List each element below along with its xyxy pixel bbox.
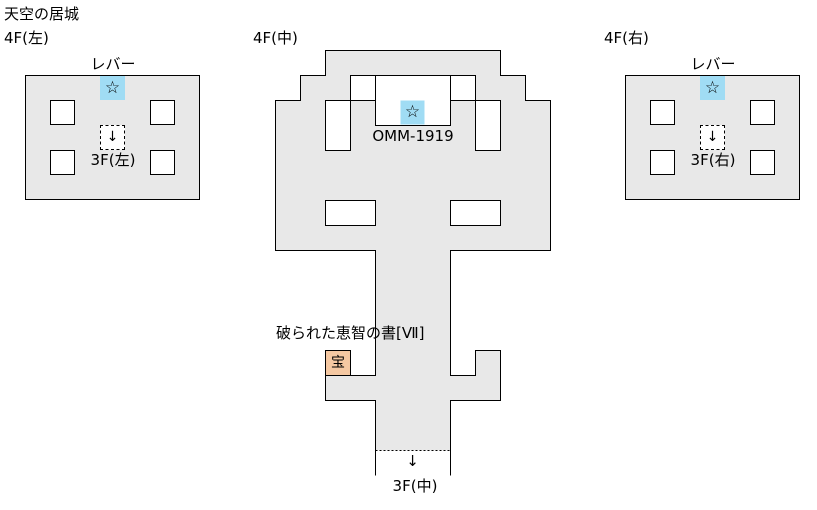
stairs-label-3f-left: 3F(左) bbox=[63, 151, 163, 169]
lever-star-cell-left: ☆ bbox=[100, 76, 125, 100]
treasure-item-label: 破られた恵智の書[Ⅶ] bbox=[276, 324, 425, 342]
pillar-hole bbox=[326, 201, 376, 226]
down-arrow-icon: ↓ bbox=[107, 129, 119, 145]
stairs-down-cell-left: ↓ bbox=[100, 125, 125, 150]
stairs-label-3f-middle: 3F(中) bbox=[355, 477, 475, 495]
pillar-hole bbox=[326, 101, 351, 151]
pillar-block bbox=[750, 100, 775, 125]
down-arrow-icon: ↓ bbox=[400, 451, 425, 471]
dungeon-map-page: 天空の居城 4F(左) 4F(中) 4F(右) レバー ☆ ↓ 3F(左) ☆ … bbox=[0, 0, 817, 510]
map-title: 天空の居城 bbox=[4, 5, 79, 23]
star-icon: ☆ bbox=[405, 102, 420, 122]
boss-label-omm-1919: OMM-1919 bbox=[353, 127, 473, 145]
treasure-cell: 宝 bbox=[325, 350, 351, 376]
pillar-hole bbox=[476, 101, 501, 151]
pillar-block bbox=[150, 100, 175, 125]
pillar-block bbox=[650, 100, 675, 125]
lever-label-right: レバー bbox=[673, 55, 753, 73]
pillar-hole bbox=[351, 76, 376, 101]
pillar-block bbox=[50, 100, 75, 125]
stairs-down-cell-right: ↓ bbox=[700, 125, 725, 150]
event-star-cell-middle: ☆ bbox=[400, 100, 425, 125]
down-arrow-icon: ↓ bbox=[707, 129, 719, 145]
pillar-hole bbox=[451, 201, 501, 226]
lever-label-left: レバー bbox=[73, 55, 153, 73]
floor-label-4f-right: 4F(右) bbox=[604, 29, 649, 47]
treasure-kanji: 宝 bbox=[331, 355, 345, 371]
stairs-label-3f-right: 3F(右) bbox=[663, 151, 763, 169]
star-icon: ☆ bbox=[705, 78, 720, 98]
star-icon: ☆ bbox=[105, 78, 120, 98]
pillar-hole bbox=[451, 76, 476, 101]
floor-label-4f-middle: 4F(中) bbox=[253, 29, 298, 47]
lever-star-cell-right: ☆ bbox=[700, 76, 725, 100]
floor-label-4f-left: 4F(左) bbox=[4, 29, 49, 47]
